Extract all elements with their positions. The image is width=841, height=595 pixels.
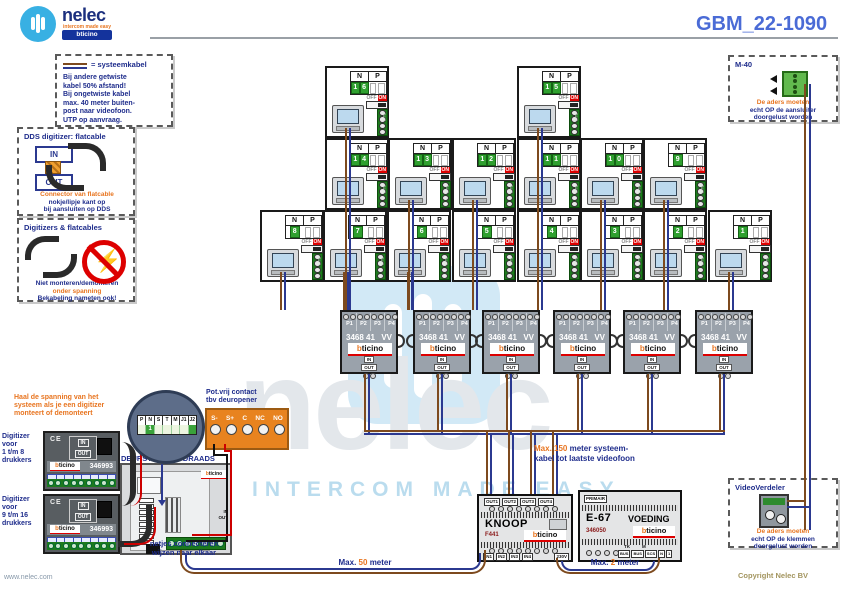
label-line: drukkers bbox=[2, 520, 42, 528]
screw bbox=[605, 314, 611, 320]
p-cell bbox=[753, 227, 760, 238]
monitor-base bbox=[528, 198, 552, 203]
port: P1 bbox=[416, 313, 430, 331]
screw bbox=[647, 314, 653, 320]
screw bbox=[506, 314, 512, 320]
screw bbox=[570, 314, 576, 320]
copyright-text: Copyright Nelec BV bbox=[738, 571, 808, 580]
system-cable-blue bbox=[411, 272, 413, 310]
n-header: N bbox=[478, 144, 496, 153]
n-digit: 7 bbox=[353, 226, 363, 238]
p-cell bbox=[761, 227, 768, 238]
switch-knob bbox=[378, 103, 386, 107]
port-screws bbox=[527, 314, 540, 320]
knoop-module: OUT1OUT2OUT3OUT4 KNOOP F441 bticino IN1I… bbox=[477, 494, 573, 562]
contact-terminal-labels: S-S+CNCNO bbox=[207, 415, 287, 422]
p-header: P bbox=[561, 72, 578, 81]
diagram-canvas: nelec INTERCOM MADE EASY nelec intercom … bbox=[0, 0, 841, 595]
port: P3 bbox=[371, 313, 385, 331]
model-line: 3468 41VV bbox=[701, 333, 747, 342]
screw bbox=[109, 543, 115, 549]
in-label: IN bbox=[78, 439, 89, 447]
p-cell bbox=[562, 83, 569, 94]
speaker-grille bbox=[165, 497, 181, 533]
videofoon-unit: NP4OFFONBUS bbox=[517, 210, 581, 282]
header-divider bbox=[150, 37, 838, 39]
logo-bar bbox=[41, 17, 45, 30]
p-cell bbox=[313, 227, 320, 238]
bus-label: BUS bbox=[380, 257, 385, 265]
monitor-screen bbox=[337, 181, 359, 196]
screw bbox=[48, 543, 54, 549]
n-digit: 4 bbox=[360, 154, 369, 166]
np-value-row: 6 bbox=[412, 226, 449, 239]
p-cell bbox=[378, 83, 385, 94]
videofoon-unit: NP2OFFONBUS bbox=[643, 210, 707, 282]
np-value-row: 11 bbox=[542, 154, 579, 167]
port-label: P1 bbox=[559, 321, 566, 327]
p-cell bbox=[505, 155, 512, 166]
brand-name: nelec bbox=[62, 5, 106, 26]
terminal-screw bbox=[314, 267, 321, 273]
onoff-switch: OFFON bbox=[615, 239, 642, 253]
note-line: bij aansluiten op DDS bbox=[21, 206, 133, 214]
system-cable-blue bbox=[723, 374, 725, 435]
monitor-screen bbox=[464, 253, 486, 268]
terminal-screw bbox=[442, 195, 449, 201]
onoff-switch: OFFON bbox=[423, 167, 450, 181]
np-header-row: NP bbox=[285, 215, 322, 226]
wire-loop bbox=[688, 334, 695, 348]
screw bbox=[563, 314, 569, 320]
terminal-screw bbox=[379, 129, 386, 135]
np-value-row: 4 bbox=[542, 226, 579, 239]
screw bbox=[513, 314, 519, 320]
p-cell bbox=[570, 227, 577, 238]
n-header: N bbox=[606, 144, 624, 153]
bus-terminal: BUS bbox=[569, 253, 580, 280]
terminal-screw bbox=[506, 195, 513, 201]
switch-slider bbox=[558, 245, 580, 253]
port-label: P2 bbox=[643, 321, 650, 327]
system-cable-brown bbox=[647, 374, 649, 432]
videofoon-unit: NP7OFFONBUS bbox=[323, 210, 387, 282]
n-header: N bbox=[543, 72, 561, 81]
bticino-logo: bticino bbox=[703, 343, 747, 356]
onoff-switch: OFFON bbox=[487, 167, 514, 181]
configurator-label: T bbox=[163, 416, 171, 425]
screw bbox=[499, 314, 505, 320]
system-cable-brown bbox=[577, 374, 579, 432]
bus-label: BUS bbox=[637, 185, 642, 193]
terminal-screw bbox=[377, 273, 384, 279]
logo-bar bbox=[31, 17, 35, 30]
system-cable-brown bbox=[804, 84, 806, 530]
screw bbox=[598, 314, 604, 320]
screw bbox=[726, 314, 732, 320]
model-suffix: VV bbox=[594, 333, 605, 342]
switch-slider bbox=[301, 245, 323, 253]
clamp-arrow-icon bbox=[770, 75, 777, 83]
screw bbox=[71, 480, 77, 486]
bus-terminal: BUS bbox=[569, 109, 580, 136]
port: P4 bbox=[740, 313, 753, 331]
screw bbox=[765, 510, 775, 520]
n-value: 6 bbox=[413, 226, 431, 238]
flatcable-io-icon: INOUT bbox=[69, 436, 97, 460]
wire-loop bbox=[546, 334, 553, 348]
n-value: 3 bbox=[606, 226, 624, 238]
system-cable-brown bbox=[343, 272, 345, 310]
no-power-icon: ⚡ bbox=[82, 240, 126, 284]
screw bbox=[512, 373, 518, 379]
np-value-row: 15 bbox=[542, 82, 579, 95]
screw bbox=[705, 314, 711, 320]
bus-terminal: BUS bbox=[439, 253, 450, 280]
port-label: P2 bbox=[715, 321, 722, 327]
monitor-icon bbox=[267, 249, 299, 277]
monitor-icon bbox=[332, 177, 364, 205]
p-cell bbox=[305, 227, 312, 238]
configurator-label: N bbox=[146, 416, 154, 425]
label-line: 9 t/m 16 bbox=[2, 512, 42, 520]
monitor-icon bbox=[587, 249, 619, 277]
out-terminal-label: OUT3 bbox=[520, 498, 536, 506]
n-value: 13 bbox=[414, 154, 432, 166]
p-header: P bbox=[624, 144, 641, 153]
out-terminal-labels: OUT1OUT2OUT3OUT4 bbox=[484, 498, 554, 506]
screw bbox=[451, 314, 457, 320]
screw bbox=[443, 373, 449, 379]
terminal-screw bbox=[506, 273, 513, 279]
p-value bbox=[367, 226, 385, 238]
monitor-base bbox=[654, 270, 678, 275]
np-header-row: NP bbox=[733, 215, 770, 226]
p-value bbox=[432, 154, 450, 166]
legend-title: = systeemkabel bbox=[91, 60, 147, 69]
onoff-switch: OFFON bbox=[615, 167, 642, 181]
configurator-pointer bbox=[161, 464, 163, 502]
bticino-logo: bticino bbox=[50, 525, 80, 534]
p-cell bbox=[633, 155, 640, 166]
note-line: onder spanning bbox=[21, 288, 133, 296]
bus-label: BUS bbox=[637, 257, 642, 265]
n-header: N bbox=[734, 216, 752, 225]
system-cable-blue bbox=[364, 433, 725, 435]
out-terminal-label: OUT2 bbox=[502, 498, 518, 506]
switch-knob bbox=[505, 247, 513, 251]
n-header: N bbox=[606, 216, 624, 225]
terminal-strip bbox=[763, 498, 785, 505]
screw bbox=[94, 480, 100, 486]
configurator-block: PNSTMJ1J2 1 bbox=[137, 415, 197, 435]
configurator-label: S bbox=[155, 416, 163, 425]
blue-wire-sample bbox=[63, 67, 87, 69]
out-label: OUT bbox=[434, 364, 450, 371]
screw bbox=[71, 543, 77, 549]
system-cable-brown bbox=[486, 432, 488, 494]
legend-line: post naar videofoon. bbox=[63, 108, 135, 117]
port: P2 bbox=[430, 313, 444, 331]
port: P4 bbox=[458, 313, 471, 331]
knoop-title: KNOOP bbox=[485, 518, 528, 530]
terminal-screw bbox=[506, 267, 513, 273]
monitor-icon bbox=[650, 177, 682, 205]
p-value bbox=[561, 82, 579, 94]
port-screws bbox=[726, 314, 739, 320]
label-line: drukkers bbox=[2, 457, 42, 465]
p-header: P bbox=[496, 216, 513, 225]
terminal-screw bbox=[762, 267, 769, 273]
n-digit: 1 bbox=[543, 82, 552, 94]
num: 50 bbox=[359, 558, 368, 567]
n-header: N bbox=[669, 216, 687, 225]
switch-knob bbox=[761, 247, 769, 251]
in-terminal-labels: IN1IN2IN3IN4 bbox=[483, 553, 533, 561]
screw bbox=[712, 314, 718, 320]
model-line: 3468 41VV bbox=[629, 333, 675, 342]
bticino-logo: bticino bbox=[50, 462, 80, 471]
contact-terminal-label: S- bbox=[211, 415, 218, 422]
np-header-row: NP bbox=[542, 71, 579, 82]
n-value: 16 bbox=[351, 82, 369, 94]
port-label: P2 bbox=[573, 321, 580, 327]
max50-annotation: Max. 50 meter bbox=[300, 558, 430, 568]
n-header: N bbox=[543, 144, 561, 153]
system-cable-brown bbox=[600, 272, 602, 310]
port: P2 bbox=[357, 313, 371, 331]
distributor-346841: P1P2P3P43468 41VVbticinoINOUT bbox=[482, 310, 540, 374]
model-number: 3468 41 bbox=[488, 333, 517, 342]
np-header-row: NP bbox=[605, 215, 642, 226]
system-cable-brown bbox=[508, 432, 510, 494]
system-cable-blue bbox=[284, 272, 286, 310]
screw bbox=[668, 314, 674, 320]
switch-knob bbox=[633, 247, 641, 251]
system-cable-blue bbox=[581, 374, 583, 435]
n-digit: 1 bbox=[552, 154, 561, 166]
label-line: voor bbox=[2, 504, 42, 512]
brand-rest: ticino bbox=[646, 527, 666, 535]
switch-knob bbox=[570, 247, 578, 251]
screw bbox=[392, 314, 398, 320]
bus-label: BUS bbox=[509, 257, 514, 265]
monitor-icon bbox=[459, 177, 491, 205]
videofoon-unit: NP1OFFONBUS bbox=[708, 210, 772, 282]
switch-knob bbox=[570, 175, 578, 179]
p-value bbox=[687, 154, 705, 166]
n-digit: 3 bbox=[423, 154, 432, 166]
onoff-switch: OFFON bbox=[552, 95, 579, 109]
n-header: N bbox=[286, 216, 304, 225]
system-cable-blue bbox=[651, 374, 653, 435]
p-value bbox=[496, 154, 514, 166]
out-label: OUT bbox=[574, 364, 590, 371]
brand-rest: ticino bbox=[504, 345, 525, 353]
np-config-table: NP5 bbox=[477, 215, 514, 239]
p-header: P bbox=[624, 216, 641, 225]
wire-loop bbox=[406, 334, 413, 348]
np-value-row: 13 bbox=[413, 154, 450, 167]
monitor-base bbox=[719, 270, 743, 275]
screw bbox=[458, 314, 464, 320]
rest: meter systeem- bbox=[567, 444, 628, 453]
digi-box-title: Digitizers & flatcables bbox=[24, 223, 102, 232]
p-value bbox=[431, 226, 449, 238]
port-screws bbox=[513, 314, 526, 320]
screw bbox=[101, 543, 107, 549]
terminal-screw bbox=[571, 201, 578, 207]
n-digit: 1 bbox=[351, 82, 360, 94]
brand-rest: ticino bbox=[717, 345, 738, 353]
np-value-row: 14 bbox=[350, 154, 387, 167]
configurator-slot bbox=[180, 425, 188, 434]
terminal-screw bbox=[762, 273, 769, 279]
onoff-switch: OFFON bbox=[743, 239, 770, 253]
screw bbox=[626, 314, 632, 320]
terminal-screw bbox=[441, 273, 448, 279]
n-digit: 1 bbox=[738, 226, 748, 238]
screw bbox=[94, 543, 100, 549]
switch-slider bbox=[684, 173, 706, 181]
n-header: N bbox=[351, 144, 369, 153]
system-cable-brown bbox=[552, 432, 554, 494]
out-terminal-label: OUT1 bbox=[484, 498, 500, 506]
title-line: Pot.vrij contact bbox=[206, 389, 257, 397]
ce-mark: CE bbox=[50, 436, 62, 443]
np-config-table: NP2 bbox=[668, 215, 705, 239]
port: P3 bbox=[584, 313, 598, 331]
screw bbox=[423, 314, 429, 320]
digitizer-module: CEINOUTbticino346993 bbox=[43, 494, 120, 554]
screw bbox=[86, 543, 92, 549]
terminal-screw bbox=[441, 267, 448, 273]
np-header-row: NP bbox=[477, 215, 514, 226]
port-screws bbox=[740, 314, 753, 320]
terminal-screw bbox=[571, 267, 578, 273]
videofoon-unit: NP16OFFONBUS bbox=[325, 66, 389, 138]
port-screws bbox=[570, 314, 583, 320]
bus-label: BUS bbox=[765, 257, 770, 265]
tk-label: TK bbox=[624, 544, 630, 549]
configurator-label: P bbox=[138, 416, 146, 425]
bus-terminal: BUS bbox=[632, 181, 643, 208]
bticino-badge: bticino bbox=[62, 30, 112, 40]
onoff-switch: OFFON bbox=[487, 239, 514, 253]
np-config-table: NP14 bbox=[350, 143, 387, 167]
bus-label: BUS bbox=[574, 113, 579, 121]
switch-knob bbox=[696, 175, 704, 179]
port-label: P3 bbox=[447, 321, 454, 327]
p-cell bbox=[433, 155, 440, 166]
n-header: N bbox=[669, 144, 687, 153]
port-screws bbox=[385, 314, 398, 320]
e67-title: E-67 bbox=[586, 512, 611, 524]
out-label: OUT bbox=[503, 364, 519, 371]
in-label: IN bbox=[437, 356, 448, 363]
m-label: M bbox=[642, 544, 646, 549]
terminal-screw bbox=[442, 201, 449, 207]
bus-terminal: BUS bbox=[504, 181, 515, 208]
distributor-346841: P1P2P3P43468 41VVbticinoINOUT bbox=[553, 310, 611, 374]
np-header-row: NP bbox=[348, 215, 385, 226]
p-header: P bbox=[687, 144, 704, 153]
n-digit: 5 bbox=[482, 226, 492, 238]
np-header-row: NP bbox=[413, 143, 450, 154]
pre: Max. bbox=[339, 558, 357, 567]
contact-terminal-label: NO bbox=[273, 415, 283, 422]
note-line: doorgelust worden bbox=[730, 543, 836, 551]
screw bbox=[101, 480, 107, 486]
brand-rest: ticino bbox=[537, 531, 557, 539]
screw bbox=[640, 314, 646, 320]
screw bbox=[534, 548, 540, 554]
np-config-table: NP3 bbox=[605, 215, 642, 239]
screw-row bbox=[586, 550, 619, 556]
port: P2 bbox=[640, 313, 654, 331]
screw bbox=[793, 74, 797, 78]
np-config-table: NP9 bbox=[668, 143, 705, 167]
port-label: P4 bbox=[743, 321, 750, 327]
p-cell bbox=[378, 155, 385, 166]
np-config-table: NP15 bbox=[542, 71, 579, 95]
port-row: P1P2P3P4 bbox=[556, 313, 608, 331]
system-cable-blue bbox=[510, 374, 512, 435]
np-header-row: NP bbox=[605, 143, 642, 154]
label-line: voor bbox=[2, 441, 42, 449]
n-value: 7 bbox=[349, 226, 367, 238]
screw bbox=[654, 314, 660, 320]
np-header-row: NP bbox=[350, 71, 387, 82]
configurator-slot bbox=[172, 425, 180, 434]
digitizer-label: Digitizervoor1 t/m 8drukkers bbox=[2, 433, 42, 465]
p-value bbox=[687, 226, 705, 238]
switch-slider bbox=[621, 173, 643, 181]
monitor-icon bbox=[715, 249, 747, 277]
screw bbox=[364, 314, 370, 320]
screw bbox=[584, 314, 590, 320]
port: P4 bbox=[598, 313, 611, 331]
bus-label: BUS bbox=[317, 257, 322, 265]
onoff-switch: OFFON bbox=[358, 239, 385, 253]
port: P2 bbox=[570, 313, 584, 331]
screw bbox=[258, 424, 269, 435]
system-cable-blue bbox=[667, 272, 669, 310]
monitor-base bbox=[398, 270, 422, 275]
screw bbox=[698, 314, 704, 320]
port: P4 bbox=[668, 313, 681, 331]
switch-knob bbox=[633, 175, 641, 179]
legend-line: Bij andere getwiste bbox=[63, 74, 135, 83]
bticino-logo: bticino bbox=[524, 530, 566, 542]
np-value-row: 3 bbox=[605, 226, 642, 239]
config-block bbox=[549, 519, 567, 530]
p-header: P bbox=[561, 216, 578, 225]
screw bbox=[527, 314, 533, 320]
screw bbox=[465, 314, 471, 320]
port-row: P1P2P3P4 bbox=[416, 313, 468, 331]
model-suffix: VV bbox=[523, 333, 534, 342]
configurator-value: 1 bbox=[146, 425, 154, 434]
model-number: 3468 41 bbox=[419, 333, 448, 342]
port-screws bbox=[668, 314, 681, 320]
model-suffix: VV bbox=[454, 333, 465, 342]
pre: Max. bbox=[591, 558, 609, 567]
bticino-logo: bticino bbox=[631, 343, 675, 356]
annotation-line: Max. 150 meter systeem- bbox=[534, 444, 635, 454]
n-value: 12 bbox=[478, 154, 496, 166]
wire-loop bbox=[475, 334, 482, 348]
